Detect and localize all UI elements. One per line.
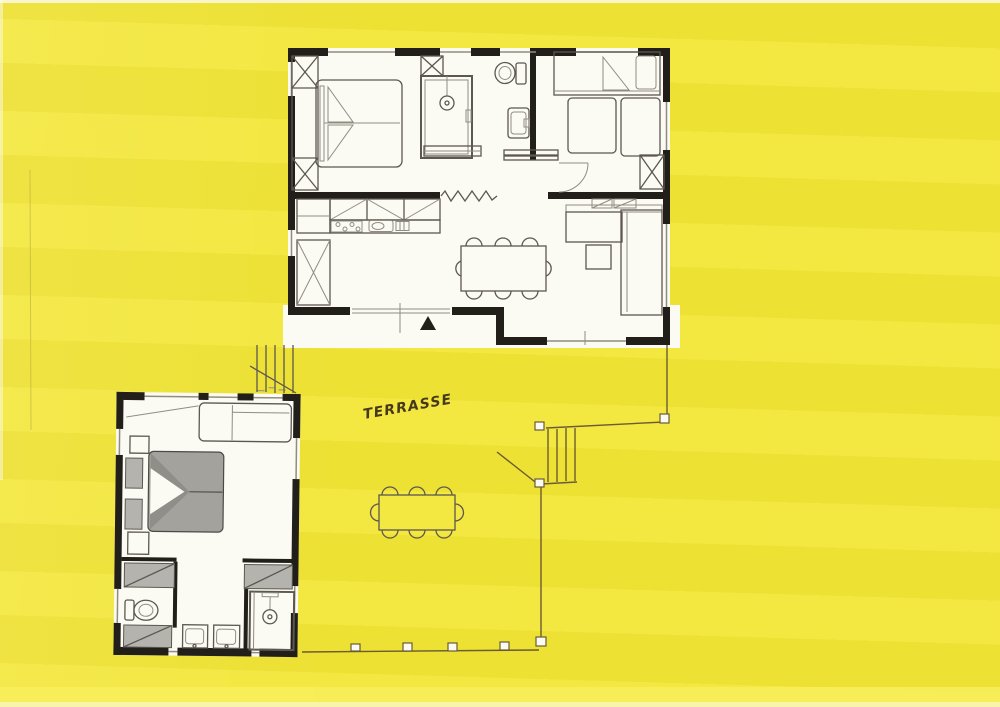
terrace-posts <box>351 414 669 651</box>
floor-plan-drawing: TERRASSE <box>0 0 1000 707</box>
lower-unit <box>113 386 300 657</box>
outdoor-table <box>379 495 455 530</box>
terrace: TERRASSE <box>302 345 669 652</box>
scanned-floor-plan-page: TERRASSE <box>0 0 1000 707</box>
terrace-table-set <box>371 487 464 538</box>
scan-crease <box>30 170 31 430</box>
page-edge-top <box>0 0 1000 3</box>
stairs-upper <box>250 345 296 393</box>
gray-cabinet <box>125 458 142 488</box>
stairs-terrace <box>497 428 577 485</box>
gray-double-bed <box>148 451 224 532</box>
page-edge-left <box>0 0 3 480</box>
page-edge-bottom-white <box>0 702 1000 707</box>
terrace-boundary <box>302 345 667 652</box>
terrace-label: TERRASSE <box>362 391 454 422</box>
upper-unit <box>283 48 680 348</box>
pencil-marks <box>257 388 286 391</box>
gray-cabinet <box>125 499 142 529</box>
